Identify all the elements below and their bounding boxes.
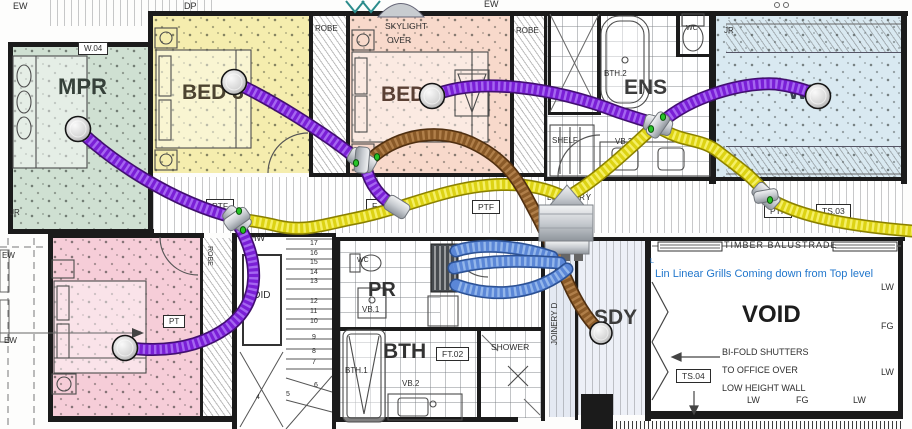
floor-plan-canvas: EWDPEWW.04MPRBED 3BEDENSWIRROBESKYLIGHTO… <box>0 0 912 429</box>
linear-grills-annotation[interactable]: Lin Linear Grills Coming down from Top l… <box>655 268 873 280</box>
annotation-layer: Lin Linear Grills Coming down from Top l… <box>0 0 912 429</box>
